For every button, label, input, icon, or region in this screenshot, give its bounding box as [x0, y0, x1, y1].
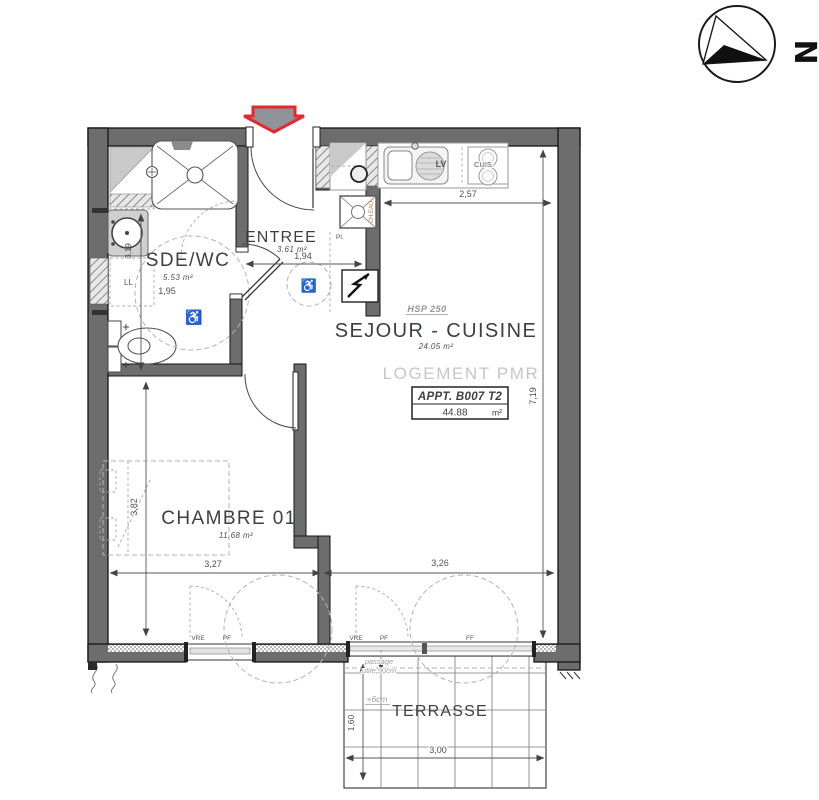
dim-label-chambre-w: 3,27 — [204, 559, 222, 569]
washer-label: LL — [124, 278, 133, 287]
room-label-terrasse: TERRASSE — [392, 703, 488, 720]
room-label-sejour: SEJOUR - CUISINE — [335, 320, 537, 342]
entry-door-jamb-right — [313, 127, 320, 147]
window-2-type-label: PF — [380, 635, 388, 642]
level-note: +6cm — [366, 694, 387, 704]
insulation-band-3 — [536, 645, 556, 652]
corner-sink-icon — [351, 166, 367, 182]
window-1-swing-dashed — [190, 586, 242, 638]
window-2-shutter-label: VRE — [349, 635, 363, 642]
faucet-icon — [412, 143, 418, 149]
entry-stub-hatch — [316, 146, 330, 188]
kitchen-fixtures: LV CUIS. CH.EAU — [330, 143, 508, 314]
wall-joint-mark-2 — [92, 310, 108, 315]
sink-bowl-icon — [388, 151, 412, 180]
floor-plan-drawing: ♿ LV CUIS. CH.EAU — [0, 0, 819, 800]
chambre-door-swing — [245, 374, 296, 428]
window-2-fixed-label: FF — [466, 635, 474, 642]
window-1-cap-left — [184, 642, 188, 662]
window-2-glazing — [350, 646, 532, 651]
wall-break-squiggle-2 — [111, 664, 117, 693]
appt-area-unit: m² — [492, 408, 502, 418]
window-1-cap-right — [252, 642, 256, 662]
room-area-sejour: 24.05 m² — [418, 342, 454, 351]
entry-door-swing — [251, 147, 314, 210]
dim-label-depth: 7,19 — [528, 387, 538, 405]
wall-joint-mark-1 — [92, 208, 108, 213]
corner-panel-hatch — [110, 194, 154, 207]
dim-label-chambre-d: 3,82 — [129, 498, 139, 516]
apartment-info-box: APPT. B007 T2 44.88 m² — [412, 387, 508, 419]
passage-note-line2: utile 90cm — [362, 666, 396, 675]
passage-note-line1: passage — [364, 657, 393, 666]
chambre-door — [245, 372, 298, 430]
room-label-entree: ENTREE — [245, 229, 317, 246]
room-label-chambre: CHAMBRE 01 — [161, 508, 296, 529]
left-wall-hatch — [90, 258, 108, 304]
north-compass: N — [699, 6, 819, 82]
appt-ref-label: APPT. B007 T2 — [417, 391, 503, 403]
wheelchair-icon-entree: ♿ — [301, 278, 317, 293]
terrasse-area — [344, 656, 546, 788]
room-area-sdewc: 5.53 m² — [163, 273, 193, 282]
room-area-entree: 3.61 m² — [277, 245, 307, 254]
window-2-cap-left — [346, 641, 350, 657]
sdewc-wall-lower — [230, 294, 242, 370]
toilet-bowl-inner — [128, 338, 150, 354]
dim-label-sdewc-w: 1,95 — [158, 286, 176, 296]
window-1-shutter-label: VRE — [191, 635, 205, 642]
window-2-mullion — [422, 643, 427, 654]
burner-icon-2 — [479, 167, 497, 185]
dim-label-terrasse-w: 3,00 — [429, 745, 447, 755]
dim-label-sdewc-d: 3,19 — [124, 243, 133, 259]
cooktop-label: CUIS. — [474, 160, 494, 169]
dim-label-sejour-w: 3,26 — [431, 558, 449, 568]
room-area-chambre: 11.68 m² — [219, 531, 253, 540]
wall-stub-mark — [88, 662, 97, 670]
wall-end-cap-1 — [236, 247, 248, 252]
logement-pmr-label: LOGEMENT PMR — [383, 364, 540, 383]
insulation-band-2 — [256, 645, 346, 652]
pmr-turning-circle-chambre — [224, 575, 332, 683]
sdewc-bottom-wall — [108, 364, 242, 376]
ceiling-height-label: HSP 250 — [407, 304, 446, 314]
wheelchair-icon: ♿ — [185, 309, 202, 326]
terrasse-slab — [344, 656, 546, 788]
wall-cut-ticks — [560, 672, 580, 679]
floor-plan-page: ♿ LV CUIS. CH.EAU — [0, 0, 819, 800]
dim-label-terrasse-d: 1,60 — [346, 714, 356, 731]
north-label: N — [787, 39, 819, 64]
shower-head-icon — [171, 141, 193, 150]
insulation-band-1 — [108, 645, 186, 652]
chambre-wall-lower — [318, 536, 330, 644]
right-wall — [558, 128, 580, 670]
window-2-cap-right — [532, 641, 536, 657]
entry-door-jamb-left — [246, 127, 253, 147]
water-heater-valve — [352, 206, 365, 219]
dishwasher-label: LV — [436, 159, 447, 169]
window-1-sill — [190, 648, 250, 654]
dim-label-kitchen: 2,57 — [459, 189, 477, 199]
appt-area-value: 44.88 — [442, 408, 467, 419]
room-label-sdewc: SDE/WC — [146, 250, 230, 271]
window-1: VRE PF — [184, 586, 256, 662]
shower-drain-icon — [187, 167, 203, 183]
chambre-door-leaf — [293, 372, 298, 430]
wall-end-cap-2 — [230, 294, 242, 299]
closet-label: Pl. — [336, 234, 344, 241]
water-heater-label: CH.EAU — [369, 201, 375, 224]
window-2-swing-dashed — [356, 586, 408, 638]
